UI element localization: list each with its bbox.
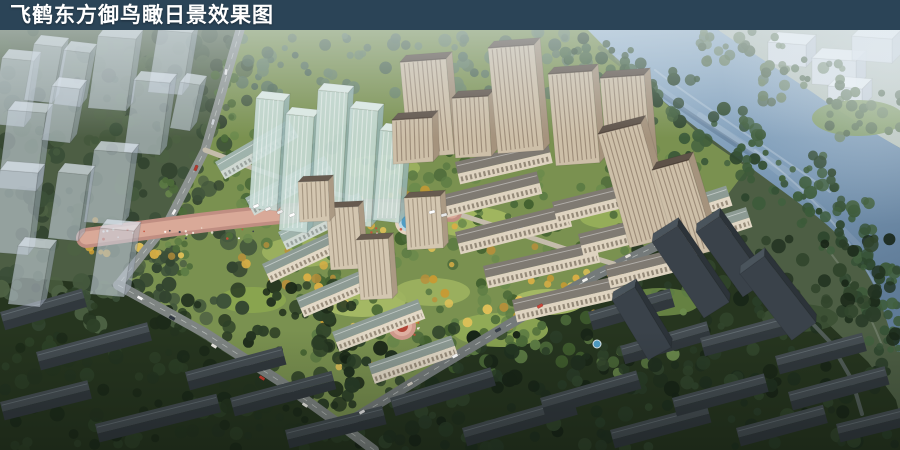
screenshot-stage: 飞鹤东方御鸟瞰日景效果图: [0, 0, 900, 450]
title-text: 飞鹤东方御鸟瞰日景效果图: [10, 5, 274, 26]
title-bar: 飞鹤东方御鸟瞰日景效果图: [0, 0, 900, 30]
aerial-rendering: [0, 0, 900, 450]
